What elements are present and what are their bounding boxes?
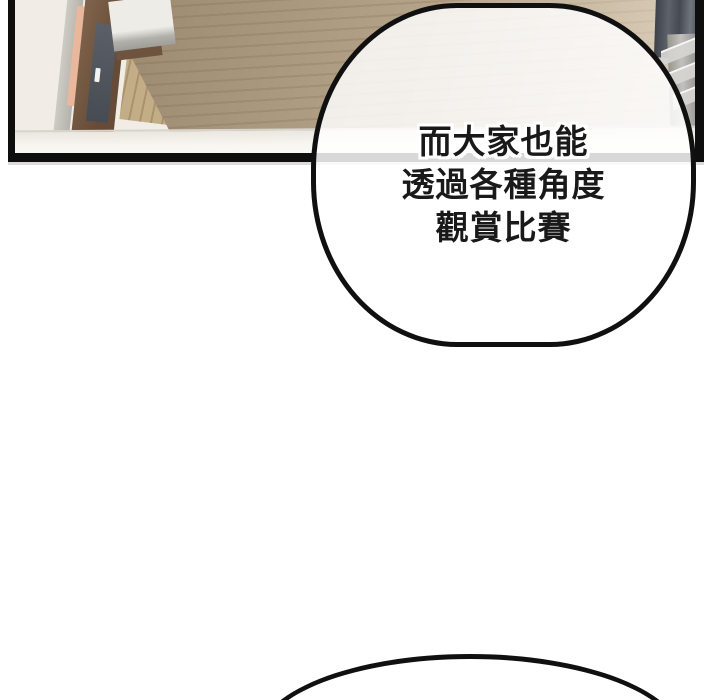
speech-bubble-next	[257, 654, 683, 700]
speech-bubble-main: 而大家也能 透過各種角度 觀賞比賽	[311, 3, 696, 347]
comic-page: 而大家也能 透過各種角度 觀賞比賽	[0, 0, 720, 700]
speech-line: 透過各種角度	[316, 163, 691, 206]
speech-bubble-text: 而大家也能 透過各種角度 觀賞比賽	[316, 120, 691, 249]
door-lintel	[108, 0, 176, 52]
speech-line: 觀賞比賽	[316, 206, 691, 249]
speech-line: 而大家也能	[316, 120, 691, 163]
